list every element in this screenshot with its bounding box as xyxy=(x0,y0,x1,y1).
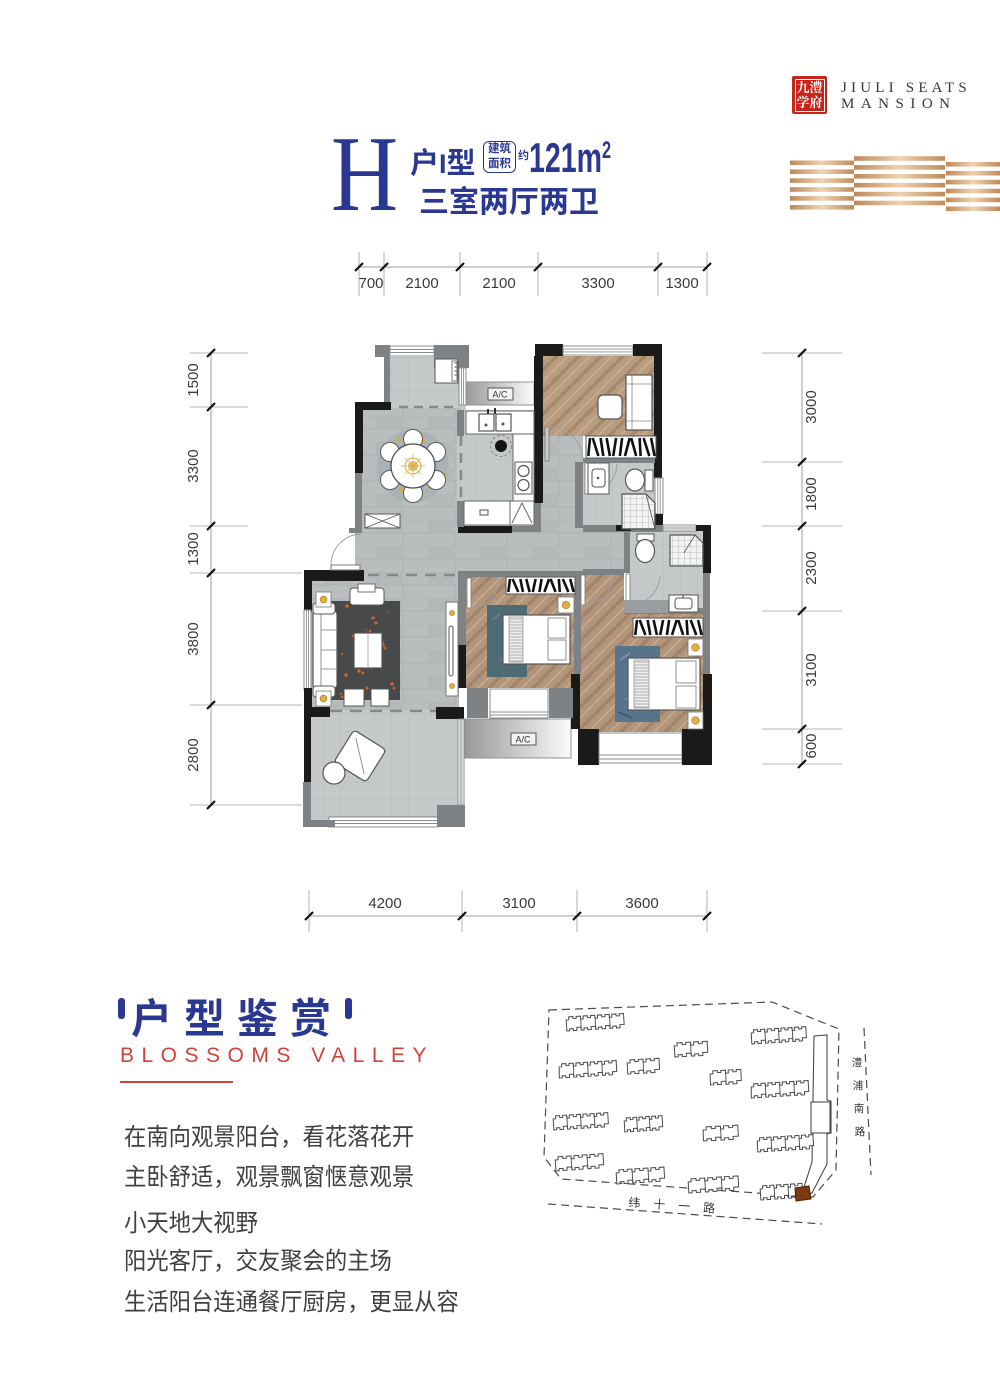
svg-text:A/C: A/C xyxy=(492,390,508,400)
svg-text:2300: 2300 xyxy=(803,551,820,584)
svg-text:3600: 3600 xyxy=(625,895,658,912)
svg-text:2800: 2800 xyxy=(185,738,202,771)
svg-text:1500: 1500 xyxy=(185,363,202,396)
svg-text:A/C: A/C xyxy=(515,735,531,745)
svg-text:1300: 1300 xyxy=(665,275,698,292)
svg-text:4200: 4200 xyxy=(368,895,401,912)
svg-text:3000: 3000 xyxy=(803,390,820,423)
svg-text:3300: 3300 xyxy=(185,449,202,482)
svg-text:3800: 3800 xyxy=(185,622,202,655)
svg-text:2100: 2100 xyxy=(482,275,515,292)
svg-text:3300: 3300 xyxy=(581,275,614,292)
svg-text:700: 700 xyxy=(358,275,383,292)
svg-text:澧浦南路: 澧浦南路 xyxy=(852,1056,866,1138)
svg-text:1300: 1300 xyxy=(185,532,202,565)
svg-text:2100: 2100 xyxy=(405,275,438,292)
svg-text:3100: 3100 xyxy=(502,895,535,912)
svg-text:1800: 1800 xyxy=(803,477,820,510)
svg-text:600: 600 xyxy=(803,733,820,758)
svg-text:3100: 3100 xyxy=(803,653,820,686)
